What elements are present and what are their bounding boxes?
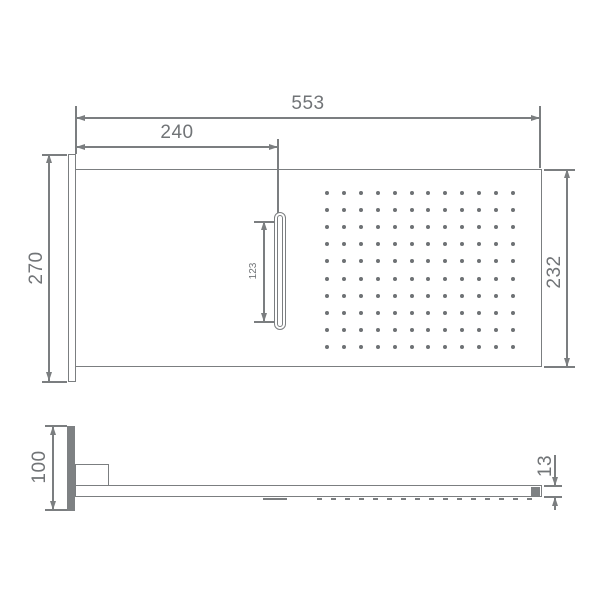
nozzle-dot xyxy=(342,191,346,195)
nozzle-dot xyxy=(325,225,329,229)
nozzle-hidden-line xyxy=(317,498,533,500)
nozzle-dot xyxy=(494,328,498,332)
nozzle-dot xyxy=(359,328,363,332)
nozzle-dot xyxy=(443,259,447,263)
nozzle-dot xyxy=(342,328,346,332)
nozzle-dot xyxy=(443,208,447,212)
nozzle-dot xyxy=(443,225,447,229)
nozzle-dot xyxy=(359,191,363,195)
nozzle-dot xyxy=(443,242,447,246)
extension-line xyxy=(544,366,575,368)
nozzle-dot xyxy=(443,191,447,195)
nozzle-dot xyxy=(426,328,430,332)
nozzle-dot xyxy=(325,277,329,281)
nozzle-dot xyxy=(494,242,498,246)
nozzle-dot xyxy=(342,294,346,298)
nozzle-dot xyxy=(443,345,447,349)
nozzle-dot xyxy=(511,345,515,349)
nozzle-dot xyxy=(410,225,414,229)
nozzle-dot xyxy=(494,311,498,315)
arm-end-cap xyxy=(531,487,540,496)
dim-label-face-height: 232 xyxy=(544,232,566,312)
nozzle-dot xyxy=(477,277,481,281)
nozzle-dot xyxy=(410,345,414,349)
nozzle-dot xyxy=(511,259,515,263)
nozzle-dot xyxy=(410,191,414,195)
nozzle-dot xyxy=(342,259,346,263)
nozzle-dot xyxy=(460,328,464,332)
nozzle-dot xyxy=(494,277,498,281)
arrowhead xyxy=(46,372,52,381)
nozzle-dot xyxy=(325,311,329,315)
nozzle-dot xyxy=(359,311,363,315)
nozzle-dot xyxy=(325,328,329,332)
nozzle-dot xyxy=(443,328,447,332)
nozzle-dot xyxy=(460,311,464,315)
nozzle-dot xyxy=(477,328,481,332)
panel-arm-profile xyxy=(75,485,542,497)
nozzle-dot xyxy=(443,277,447,281)
nozzle-dot xyxy=(511,311,515,315)
nozzle-field xyxy=(0,0,600,600)
nozzle-dot xyxy=(494,259,498,263)
nozzle-dot xyxy=(477,294,481,298)
nozzle-dot xyxy=(426,294,430,298)
dim-123-line xyxy=(263,221,265,322)
nozzle-dot xyxy=(325,242,329,246)
nozzle-dot xyxy=(376,294,380,298)
nozzle-dot xyxy=(410,259,414,263)
nozzle-dot xyxy=(494,191,498,195)
nozzle-dot xyxy=(342,345,346,349)
nozzle-dot xyxy=(426,311,430,315)
nozzle-dot xyxy=(393,242,397,246)
nozzle-dot xyxy=(359,225,363,229)
nozzle-dot xyxy=(393,345,397,349)
nozzle-dot xyxy=(410,242,414,246)
nozzle-dot xyxy=(460,345,464,349)
nozzle-dot xyxy=(511,208,515,212)
nozzle-dot xyxy=(410,294,414,298)
nozzle-dot xyxy=(376,328,380,332)
drawing-canvas: 553 240 270 232 123 xyxy=(0,0,600,600)
nozzle-dot xyxy=(477,311,481,315)
extension-line xyxy=(45,509,67,511)
nozzle-dot xyxy=(511,242,515,246)
nozzle-dot xyxy=(359,242,363,246)
nozzle-dot xyxy=(426,191,430,195)
nozzle-dot xyxy=(494,345,498,349)
nozzle-dot xyxy=(325,208,329,212)
dim-label-flange-height: 270 xyxy=(26,228,48,308)
extension-line xyxy=(277,139,279,213)
nozzle-dot xyxy=(393,277,397,281)
arrowhead xyxy=(46,154,52,163)
dim-100-line xyxy=(52,426,54,511)
nozzle-dot xyxy=(342,277,346,281)
nozzle-dot xyxy=(376,225,380,229)
nozzle-dot xyxy=(342,225,346,229)
nozzle-dot xyxy=(359,259,363,263)
nozzle-dot xyxy=(376,242,380,246)
nozzle-dot xyxy=(393,208,397,212)
dim-240-line xyxy=(76,146,278,148)
nozzle-dot xyxy=(410,328,414,332)
nozzle-dot xyxy=(511,277,515,281)
arrowhead xyxy=(76,115,85,121)
nozzle-dot xyxy=(393,259,397,263)
extension-line xyxy=(42,381,67,383)
extension-line xyxy=(544,169,575,171)
nozzle-dot xyxy=(410,311,414,315)
arrowhead xyxy=(261,221,267,230)
nozzle-dot xyxy=(426,208,430,212)
nozzle-dot xyxy=(393,191,397,195)
nozzle-dot xyxy=(376,311,380,315)
nozzle-dot xyxy=(494,208,498,212)
arrowhead xyxy=(564,358,570,367)
nozzle-dot xyxy=(477,225,481,229)
nozzle-dot xyxy=(325,191,329,195)
nozzle-dot xyxy=(460,191,464,195)
nozzle-dot xyxy=(325,345,329,349)
dim-label-slot-length: 123 xyxy=(248,253,260,289)
slot-hidden-line xyxy=(263,498,287,500)
arrowhead xyxy=(552,497,558,506)
nozzle-dot xyxy=(376,191,380,195)
dim-label-slot-offset: 240 xyxy=(137,122,217,144)
nozzle-dot xyxy=(443,311,447,315)
arrowhead xyxy=(76,144,85,150)
nozzle-dot xyxy=(511,191,515,195)
nozzle-dot xyxy=(426,259,430,263)
nozzle-dot xyxy=(477,259,481,263)
nozzle-dot xyxy=(511,225,515,229)
nozzle-dot xyxy=(426,277,430,281)
nozzle-dot xyxy=(342,208,346,212)
nozzle-dot xyxy=(410,208,414,212)
dim-270-line xyxy=(48,154,50,382)
nozzle-dot xyxy=(477,242,481,246)
nozzle-dot xyxy=(460,277,464,281)
nozzle-dot xyxy=(511,328,515,332)
nozzle-dot xyxy=(426,345,430,349)
nozzle-dot xyxy=(376,208,380,212)
nozzle-dot xyxy=(359,294,363,298)
nozzle-dot xyxy=(443,294,447,298)
arrowhead xyxy=(564,169,570,178)
dim-label-overall-width: 553 xyxy=(268,93,348,115)
nozzle-dot xyxy=(325,259,329,263)
nozzle-dot xyxy=(477,345,481,349)
arrowhead xyxy=(531,115,540,121)
inlet-connector xyxy=(75,464,109,487)
nozzle-dot xyxy=(460,225,464,229)
nozzle-dot xyxy=(376,277,380,281)
nozzle-dot xyxy=(393,294,397,298)
nozzle-dot xyxy=(460,294,464,298)
nozzle-dot xyxy=(359,208,363,212)
arrowhead xyxy=(269,144,278,150)
nozzle-dot xyxy=(393,328,397,332)
nozzle-dot xyxy=(426,242,430,246)
nozzle-dot xyxy=(477,191,481,195)
nozzle-dot xyxy=(494,294,498,298)
arrowhead xyxy=(261,313,267,322)
nozzle-dot xyxy=(410,277,414,281)
nozzle-dot xyxy=(460,208,464,212)
nozzle-dot xyxy=(325,294,329,298)
nozzle-dot xyxy=(460,242,464,246)
nozzle-dot xyxy=(494,225,498,229)
nozzle-dot xyxy=(376,345,380,349)
nozzle-dot xyxy=(342,311,346,315)
dim-label-wall-plate-height: 100 xyxy=(29,427,51,507)
dim-232-line xyxy=(566,169,568,367)
nozzle-dot xyxy=(393,225,397,229)
wall-plate xyxy=(67,426,75,511)
nozzle-dot xyxy=(342,242,346,246)
nozzle-dot xyxy=(376,259,380,263)
nozzle-dot xyxy=(460,259,464,263)
dim-553-line xyxy=(76,117,540,119)
nozzle-dot xyxy=(359,277,363,281)
nozzle-dot xyxy=(393,311,397,315)
nozzle-dot xyxy=(426,225,430,229)
dim-label-arm-thickness: 13 xyxy=(536,446,556,486)
nozzle-dot xyxy=(511,294,515,298)
nozzle-dot xyxy=(477,208,481,212)
nozzle-dot xyxy=(359,345,363,349)
